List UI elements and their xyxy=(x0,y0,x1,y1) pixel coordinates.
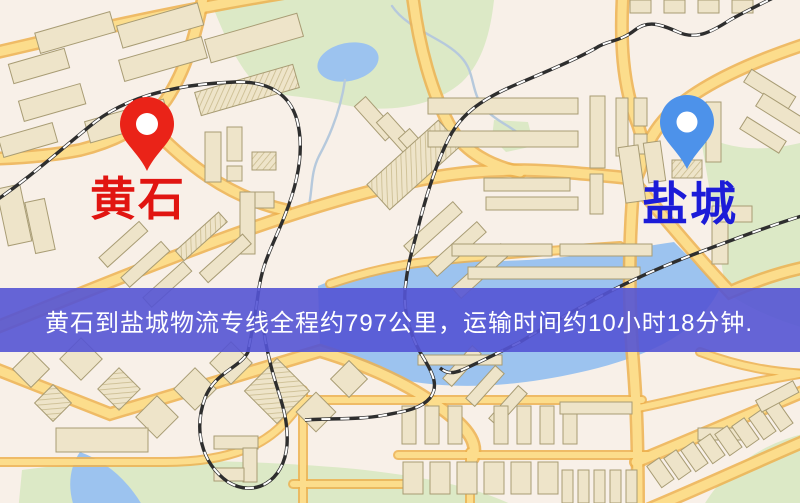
route-info-banner: 黄石到盐城物流专线全程约797公里，运输时间约10小时18分钟. xyxy=(0,288,800,352)
destination-city-label: 盐城 xyxy=(642,181,738,227)
route-info-text: 黄石到盐城物流专线全程约797公里，运输时间约10小时18分钟. xyxy=(45,303,753,338)
origin-city-label: 黄石 xyxy=(90,176,186,222)
map-background xyxy=(0,0,800,503)
map-view: 黄石 盐城 黄石到盐城物流专线全程约797公里，运输时间约10小时18分钟. xyxy=(0,0,800,503)
